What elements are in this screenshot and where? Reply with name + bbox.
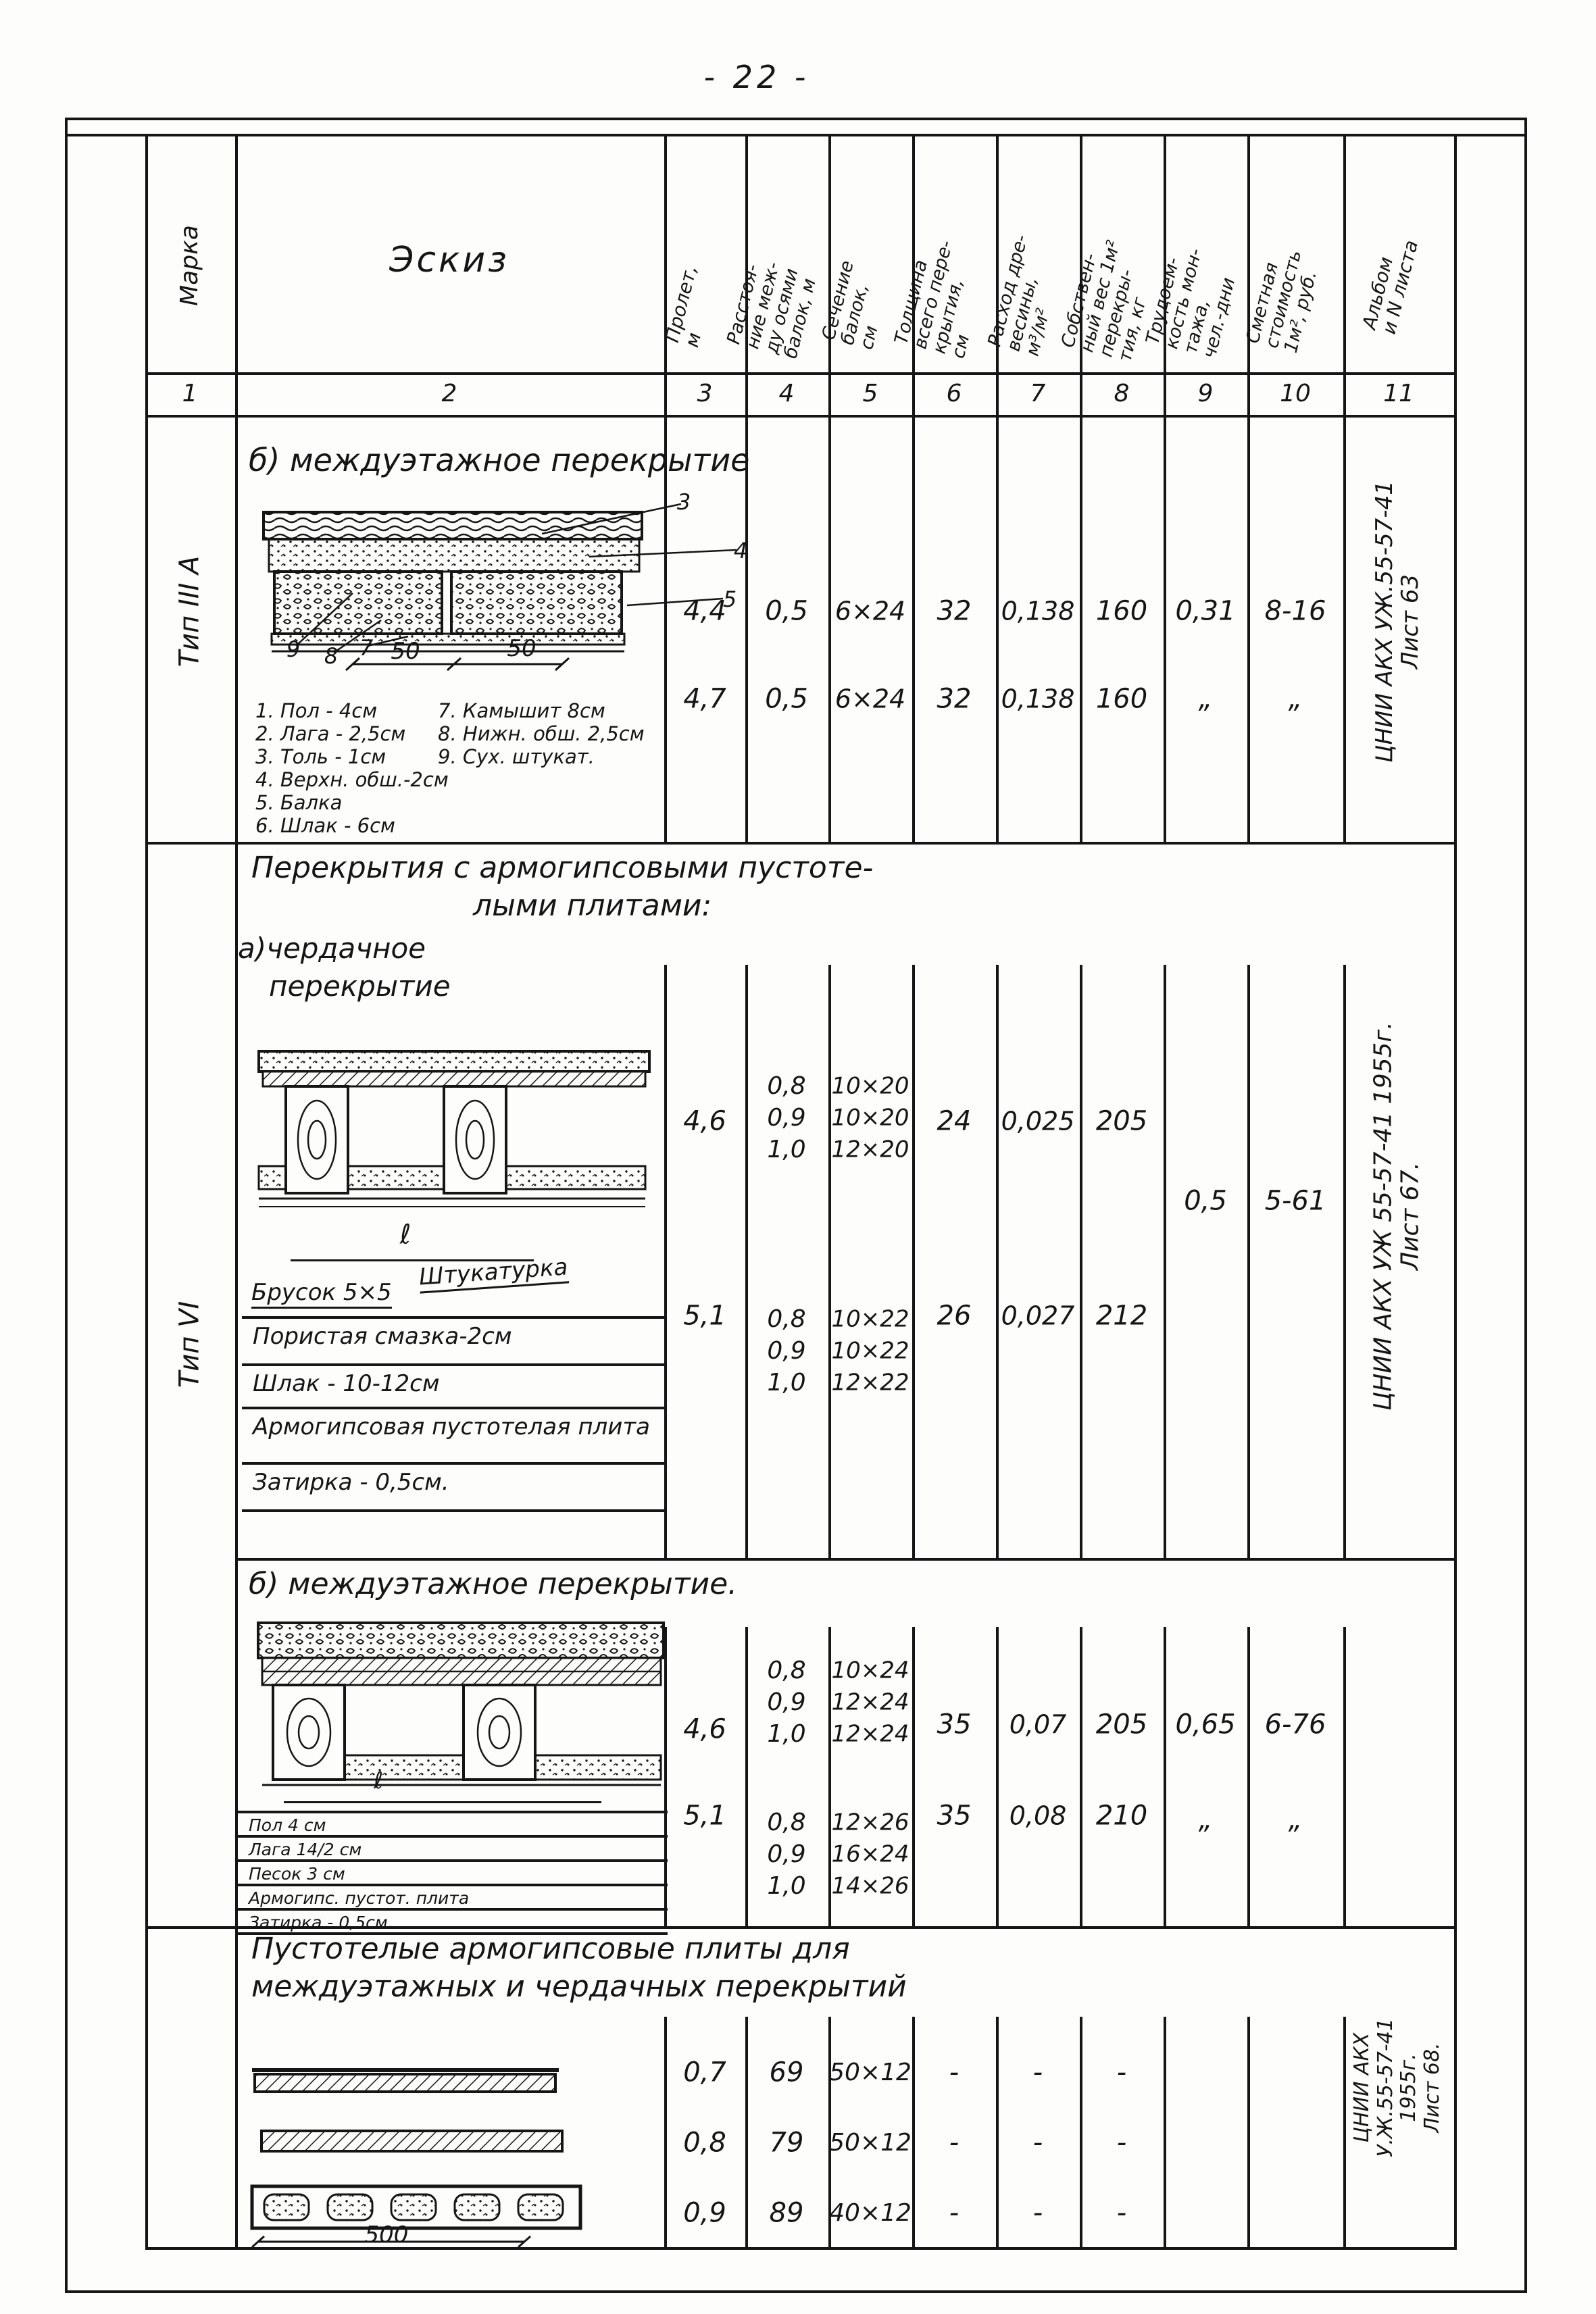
grid-line	[145, 415, 1457, 418]
s1-legend-item: 6. Шлак - 6см	[255, 815, 395, 836]
col-number: 9	[1198, 380, 1214, 407]
grid-line	[1080, 2017, 1082, 2247]
s4-r3-c6: -	[949, 2198, 959, 2229]
s3-r2-c3: 5,1	[683, 1801, 726, 1832]
s4-r2-c5: 50×12	[829, 2130, 912, 2157]
s2-r2-c3: 5,1	[683, 1301, 726, 1332]
grid-line	[145, 842, 1457, 845]
s1-r1-c3: 4,4	[683, 597, 726, 627]
col-number: 3	[697, 380, 713, 407]
s3-r2-c10: „	[1289, 1805, 1303, 1836]
s2-r1-c8: 205	[1096, 1107, 1147, 1137]
scanned-document-page: - 22 - Марка Эскиз Пролет,	[0, 0, 1596, 2314]
layer-label: Пол 4 см	[238, 1813, 668, 1838]
s3-r1-c8: 205	[1096, 1710, 1147, 1740]
s3-r2-c6: 35	[937, 1801, 972, 1832]
s2-title-line2: лыми плитами:	[473, 889, 712, 922]
grid-line	[65, 118, 1527, 120]
s4-r3-c5: 40×12	[829, 2200, 912, 2227]
grid-line	[1247, 965, 1250, 1558]
grid-line	[1247, 1627, 1250, 1926]
s2-r1-c7: 0,025	[1001, 1107, 1075, 1136]
s1-r2-c10: „	[1289, 684, 1303, 715]
grid-line	[1164, 2017, 1166, 2247]
s1-legend-item: 2. Лага - 2,5см	[255, 723, 405, 745]
s2-r1-c4: 0,8 0,9 1,0	[767, 1071, 805, 1165]
s1-legend-item: 1. Пол - 4см	[255, 700, 377, 722]
s1-legend-item: 7. Камышит 8см	[438, 700, 605, 722]
s3-r1-c3: 4,6	[683, 1715, 726, 1745]
s2-section-c10: 5-61	[1265, 1186, 1326, 1217]
s3-r1-c7: 0,07	[1009, 1711, 1067, 1740]
grid-line	[664, 134, 667, 842]
grid-line	[912, 134, 915, 842]
grid-line	[828, 965, 831, 1558]
layer-label: Армогипсовая пустотелая плита	[242, 1409, 666, 1465]
s3-title: б) междуэтажное перекрытие.	[249, 1567, 737, 1601]
grid-line	[1080, 1627, 1082, 1926]
layer-label: Армогипс. пустот. плита	[238, 1886, 668, 1911]
col-number: 11	[1383, 380, 1414, 407]
s1-legend-item: 5. Балка	[255, 792, 342, 813]
s2-dim-label: ℓ	[400, 1220, 412, 1251]
s1-r1-c6: 32	[937, 597, 972, 627]
s1-callout: 3	[677, 491, 691, 515]
s1-dim: 50	[391, 638, 420, 664]
s1-callout: 8	[324, 645, 338, 669]
s2-album-ref: ЦНИИ АКХ УЖ 55-57-41 1955г. Лист 67.	[1370, 878, 1425, 1554]
layer-label: Лага 14/2 см	[238, 1838, 668, 1862]
s2-r2-c7: 0,027	[1001, 1302, 1075, 1331]
s1-r2-c3: 4,7	[683, 684, 726, 715]
col-number: 10	[1280, 380, 1311, 407]
s4-dim-label: 500	[365, 2222, 409, 2248]
grid-line	[1164, 965, 1166, 1558]
s1-callout: 4	[734, 539, 747, 563]
s1-r2-c9: „	[1199, 684, 1213, 715]
s3-r2-c7: 0,08	[1009, 1802, 1067, 1831]
s1-dim: 50	[507, 636, 536, 661]
grid-line	[745, 965, 748, 1558]
header-albom: Альбом и N листа	[1360, 169, 1439, 336]
layer-label: Затирка - 0,5см.	[242, 1465, 666, 1512]
col-number: 6	[947, 380, 962, 407]
s4-r3-c8: -	[1117, 2198, 1126, 2229]
col-number: 4	[779, 380, 795, 407]
grid-line	[664, 2017, 667, 2247]
s3-r2-c8: 210	[1096, 1801, 1147, 1832]
s2-r1-c5: 10×20 10×20 12×20	[831, 1071, 909, 1166]
s2-subtitle-line2: перекрытие	[269, 970, 451, 1002]
grid-line	[145, 372, 1457, 375]
grid-line	[996, 965, 999, 1558]
s3-r1-c9: 0,65	[1175, 1710, 1235, 1740]
s1-legend-item: 3. Толь - 1см	[255, 746, 386, 768]
s4-album-ref: ЦНИИ АКХ У.Ж.55-57-41 1955г. Лист 68.	[1351, 1942, 1444, 2233]
layer-label: Песок 3 см	[238, 1862, 668, 1886]
layer-label: Пористая смазка-2см	[242, 1319, 666, 1366]
s3-r1-c4: 0,8 0,9 1,0	[767, 1655, 805, 1750]
s4-r1-c5: 50×12	[829, 2059, 912, 2086]
s2-r2-c6: 26	[937, 1301, 972, 1332]
grid-line	[745, 1627, 748, 1926]
s1-r2-c4: 0,5	[765, 684, 808, 715]
s1-album-ref: ЦНИИ АКХ УЖ.55-57-41 Лист 63	[1372, 412, 1423, 831]
s2-subtitle-line1: а)чердачное	[238, 932, 426, 964]
s3-r1-c10: 6-76	[1265, 1710, 1326, 1740]
grid-line	[65, 134, 1527, 136]
s4-r2-c4: 79	[770, 2128, 804, 2159]
marka-tip-6: Тип VI	[175, 1301, 205, 1388]
col-number: 2	[442, 380, 457, 407]
s1-title: б) междуэтажное перекрытие	[249, 443, 749, 478]
col-number: 8	[1114, 380, 1130, 407]
col-number: 7	[1030, 380, 1046, 407]
s1-r1-c8: 160	[1096, 597, 1147, 627]
grid-line	[1080, 134, 1082, 842]
s4-r1-c7: -	[1033, 2058, 1043, 2088]
header-eskiz: Эскиз	[389, 241, 509, 280]
s3-r1-c6: 35	[937, 1710, 972, 1740]
grid-line	[1343, 134, 1346, 842]
sketch-cherdachnoe-6	[247, 1046, 666, 1215]
grid-line	[1343, 1627, 1346, 1926]
grid-line	[1343, 965, 1346, 1558]
grid-line	[1247, 2017, 1250, 2247]
s3-r2-c4: 0,8 0,9 1,0	[767, 1807, 805, 1902]
s3-dim-line	[284, 1801, 601, 1803]
s1-r2-c8: 160	[1096, 684, 1147, 715]
s1-legend-item: 9. Сух. штукат.	[438, 746, 595, 768]
s2-r1-c6: 24	[937, 1107, 972, 1137]
grid-line	[745, 134, 748, 842]
marka-tip-3a: Тип III А	[175, 556, 205, 668]
s2-r2-c4: 0,8 0,9 1,0	[767, 1304, 805, 1399]
grid-line	[145, 134, 148, 2250]
s2-layer-list: Пористая смазка-2см Шлак - 10-12см Армог…	[242, 1316, 666, 1512]
s4-r2-c7: -	[1033, 2128, 1043, 2159]
grid-line	[65, 2290, 1527, 2293]
s1-r2-c7: 0,138	[1001, 685, 1075, 714]
s4-r3-c4: 89	[770, 2198, 804, 2229]
grid-line	[912, 1627, 915, 1926]
s4-title-line2: междуэтажных и чердачных перекрытий	[251, 1970, 907, 2003]
col-number: 1	[182, 380, 198, 407]
grid-line	[996, 2017, 999, 2247]
grid-line	[828, 1627, 831, 1926]
grid-line	[235, 1558, 1457, 1561]
s4-r2-c8: -	[1117, 2128, 1126, 2159]
s3-r1-c5: 10×24 12×24 12×24	[831, 1655, 909, 1751]
page-number: - 22 -	[704, 60, 810, 95]
grid-line	[1524, 118, 1527, 2293]
s1-r1-c4: 0,5	[765, 597, 808, 627]
s4-r1-c4: 69	[770, 2058, 804, 2088]
s2-section-c9: 0,5	[1184, 1186, 1227, 1217]
s1-r2-c6: 32	[937, 684, 972, 715]
grid-line	[1164, 1627, 1166, 1926]
s1-r1-c9: 0,31	[1175, 597, 1235, 627]
s3-r2-c5: 12×26 16×24 14×26	[831, 1807, 909, 1903]
s3-layer-list: Пол 4 см Лага 14/2 см Песок 3 см Армогип…	[238, 1811, 668, 1935]
s1-legend-item: 4. Верхн. обш.-2см	[255, 769, 449, 790]
s4-r2-c3: 0,8	[683, 2128, 726, 2159]
grid-line	[745, 2017, 748, 2247]
s2-r2-c5: 10×22 10×22 12×22	[831, 1304, 909, 1399]
s2-label-brusok: Брусок 5×5	[251, 1280, 392, 1309]
layer-label: Шлак - 10-12см	[242, 1366, 666, 1409]
sketch-mezhduetazhnoe-6	[243, 1616, 669, 1792]
s4-title-line1: Пустотелые армогипсовые плиты для	[251, 1932, 850, 1965]
col-number: 5	[863, 380, 878, 407]
s2-r2-c8: 212	[1096, 1301, 1147, 1332]
grid-line	[1454, 134, 1457, 2250]
grid-line	[1343, 2017, 1346, 2247]
grid-line	[912, 2017, 915, 2247]
s4-r3-c7: -	[1033, 2198, 1043, 2229]
s2-r1-c3: 4,6	[683, 1107, 726, 1137]
s4-r1-c8: -	[1117, 2058, 1126, 2088]
s2-title-line1: Перекрытия с армогипсовыми пустоте-	[251, 851, 873, 884]
s1-r1-c5: 6×24	[835, 597, 905, 626]
s4-r1-c3: 0,7	[683, 2058, 726, 2088]
grid-line	[1080, 965, 1082, 1558]
s1-callout: 7	[359, 636, 373, 661]
s1-r1-c10: 8-16	[1265, 597, 1326, 627]
s4-r2-c6: -	[949, 2128, 959, 2159]
grid-line	[996, 1627, 999, 1926]
header-marka: Марка	[176, 225, 203, 306]
s4-r3-c3: 0,9	[683, 2198, 726, 2229]
s4-r1-c6: -	[949, 2058, 959, 2088]
s1-r1-c7: 0,138	[1001, 597, 1075, 626]
s1-callout: 9	[286, 638, 300, 662]
s1-r2-c5: 6×24	[835, 685, 905, 714]
s1-legend-item: 8. Нижн. обш. 2,5см	[438, 723, 645, 745]
grid-line	[912, 965, 915, 1558]
s3-dim-label: ℓ	[374, 1768, 383, 1794]
sketch-pustotelye-plity	[247, 2047, 615, 2250]
s3-r2-c9: „	[1199, 1805, 1213, 1836]
grid-line	[65, 118, 68, 2293]
